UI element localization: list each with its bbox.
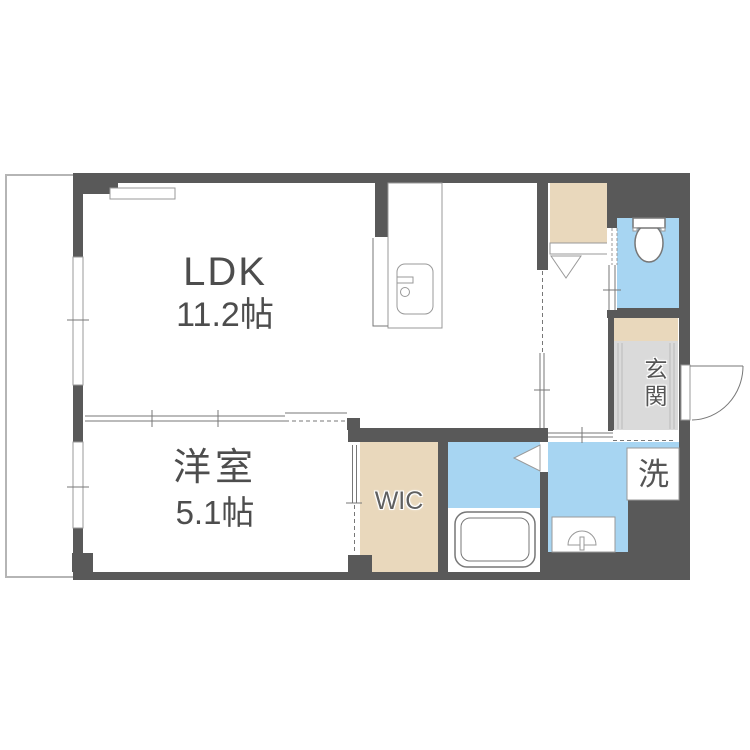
hall-closet-floor <box>550 183 610 243</box>
ldk-room-label: LDK <box>75 252 375 292</box>
kitchen-faucet <box>397 277 413 283</box>
toilet-tank <box>633 218 665 228</box>
wic-label: WIC <box>349 489 449 514</box>
door-swing-triangle-icon <box>551 256 581 278</box>
closet-door-strip <box>550 243 610 254</box>
bedroom-area-label: 5.1帖 <box>65 496 365 529</box>
wall-kitchen-stub <box>375 173 388 237</box>
washbasin-faucet-stem <box>580 537 584 550</box>
toilet-tank-tab <box>661 228 665 231</box>
floor-plan-drawing <box>0 0 750 750</box>
wall-genkan-left <box>608 318 614 431</box>
wall-corridor-ldk <box>537 183 548 270</box>
bedroom-room-label: 洋室 <box>65 449 365 487</box>
pocket-door-recess <box>537 270 548 353</box>
entrance-door-leaf <box>681 365 690 420</box>
wall-bottom <box>73 572 690 580</box>
wall-bottom-right-block <box>628 500 690 572</box>
genkan-step-edge <box>613 430 673 438</box>
wall-toilet-bottom <box>607 308 690 318</box>
ac-unit-outline-icon <box>110 188 175 199</box>
toilet-icon <box>635 224 663 262</box>
wall-wic-corner <box>348 555 372 572</box>
toilet-tank-tab <box>633 228 637 231</box>
genkan-label: 玄関 <box>642 357 665 411</box>
floor-plan: LDK 11.2帖 洋室 5.1帖 WIC 玄関 洗 <box>0 0 750 750</box>
ldk-area-label: 11.2帖 <box>75 298 375 332</box>
wall-left-upper <box>73 183 83 257</box>
kitchen-counter-edge <box>373 238 388 326</box>
bath-door-gap <box>540 442 548 472</box>
bathtub-icon <box>455 512 535 567</box>
kitchen-faucet-knob <box>401 288 410 297</box>
genkan-step <box>613 318 678 341</box>
balcony-outline-icon <box>6 175 73 577</box>
wall-top-right-block <box>607 173 690 218</box>
laundry-label: 洗 <box>625 459 682 490</box>
wall-left-middle <box>73 385 83 442</box>
wall-below-washroom <box>548 552 628 572</box>
door-swing-arc-icon <box>692 366 743 420</box>
wall-toilet-left-top <box>607 218 617 228</box>
wall-bedroom-corner <box>72 553 93 572</box>
